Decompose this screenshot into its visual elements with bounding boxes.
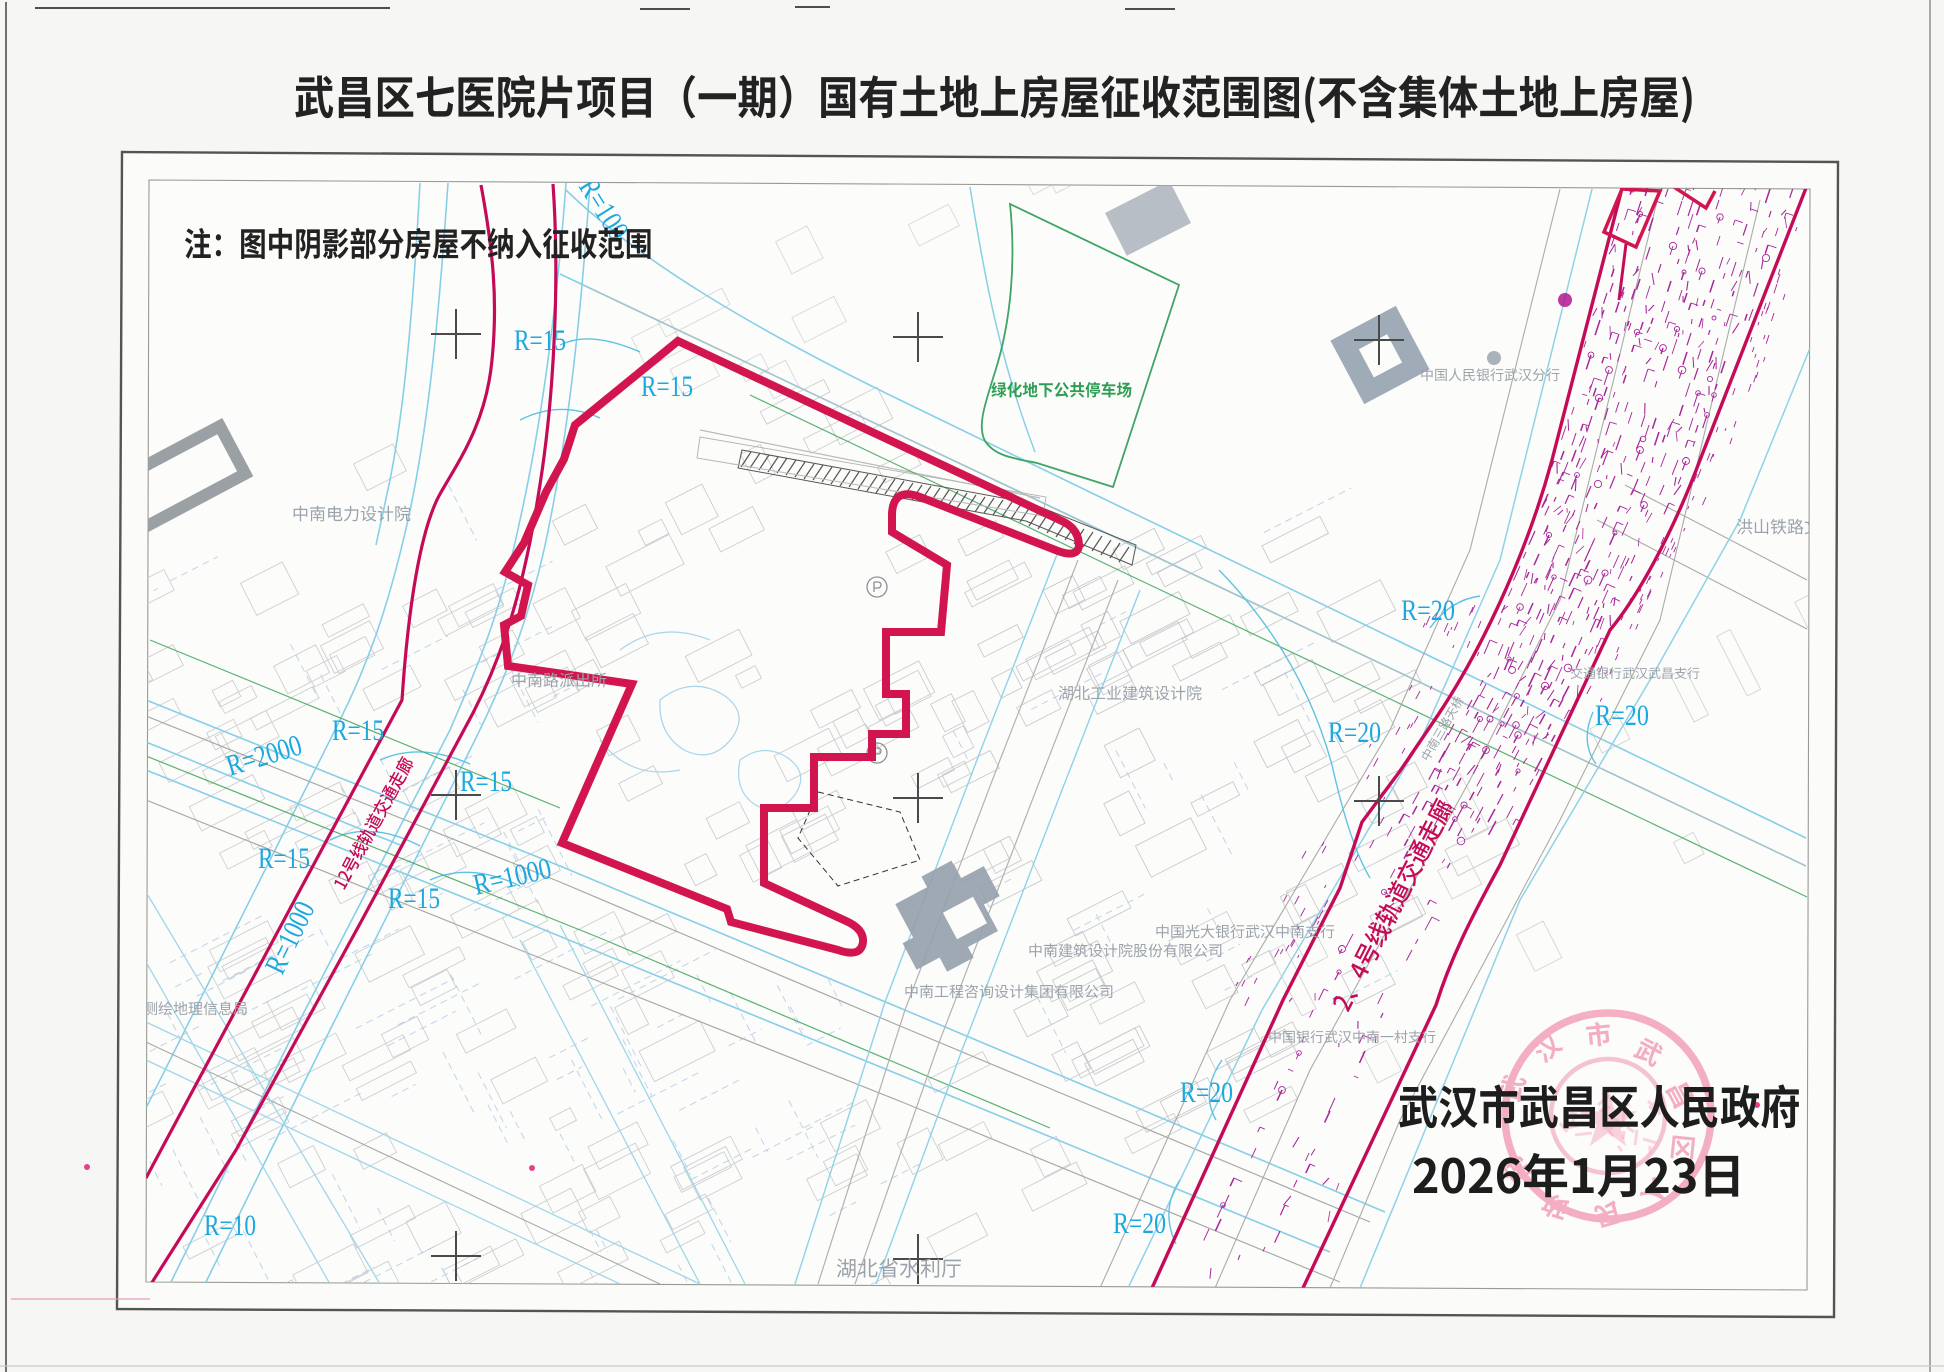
svg-text:R=10: R=10	[204, 1209, 256, 1242]
svg-text:R=20: R=20	[1113, 1207, 1166, 1240]
svg-text:R=20: R=20	[1401, 594, 1455, 627]
svg-text:R=15: R=15	[332, 714, 384, 747]
svg-text:R=15: R=15	[258, 842, 310, 875]
svg-text:R=20: R=20	[1328, 716, 1381, 749]
svg-text:R=15: R=15	[641, 370, 693, 403]
svg-text:R=20: R=20	[1595, 699, 1649, 732]
svg-text:R=15: R=15	[460, 765, 512, 798]
svg-text:R=15: R=15	[514, 324, 566, 357]
svg-text:R=15: R=15	[388, 882, 440, 915]
svg-text:R=20: R=20	[1180, 1076, 1233, 1109]
